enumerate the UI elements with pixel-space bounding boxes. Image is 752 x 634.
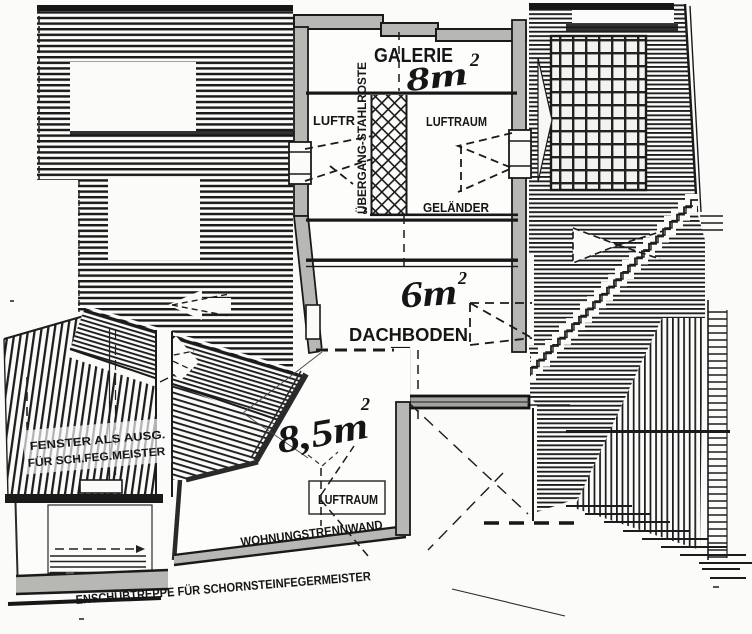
svg-text:ÜBERGANG-STAHLROSTE: ÜBERGANG-STAHLROSTE: [354, 62, 369, 214]
svg-text:LUFTRAUM: LUFTRAUM: [318, 493, 378, 507]
svg-text:8m: 8m: [404, 56, 470, 99]
svg-text:LUFTR: LUFTR: [313, 113, 356, 128]
svg-text:6m: 6m: [399, 272, 459, 317]
svg-text:LUFTRAUM: LUFTRAUM: [426, 114, 487, 129]
svg-text:GELÄNDER: GELÄNDER: [423, 200, 490, 215]
svg-text:2: 2: [457, 268, 467, 288]
svg-text:DACHBODEN: DACHBODEN: [349, 324, 468, 345]
svg-text:2: 2: [469, 50, 480, 71]
